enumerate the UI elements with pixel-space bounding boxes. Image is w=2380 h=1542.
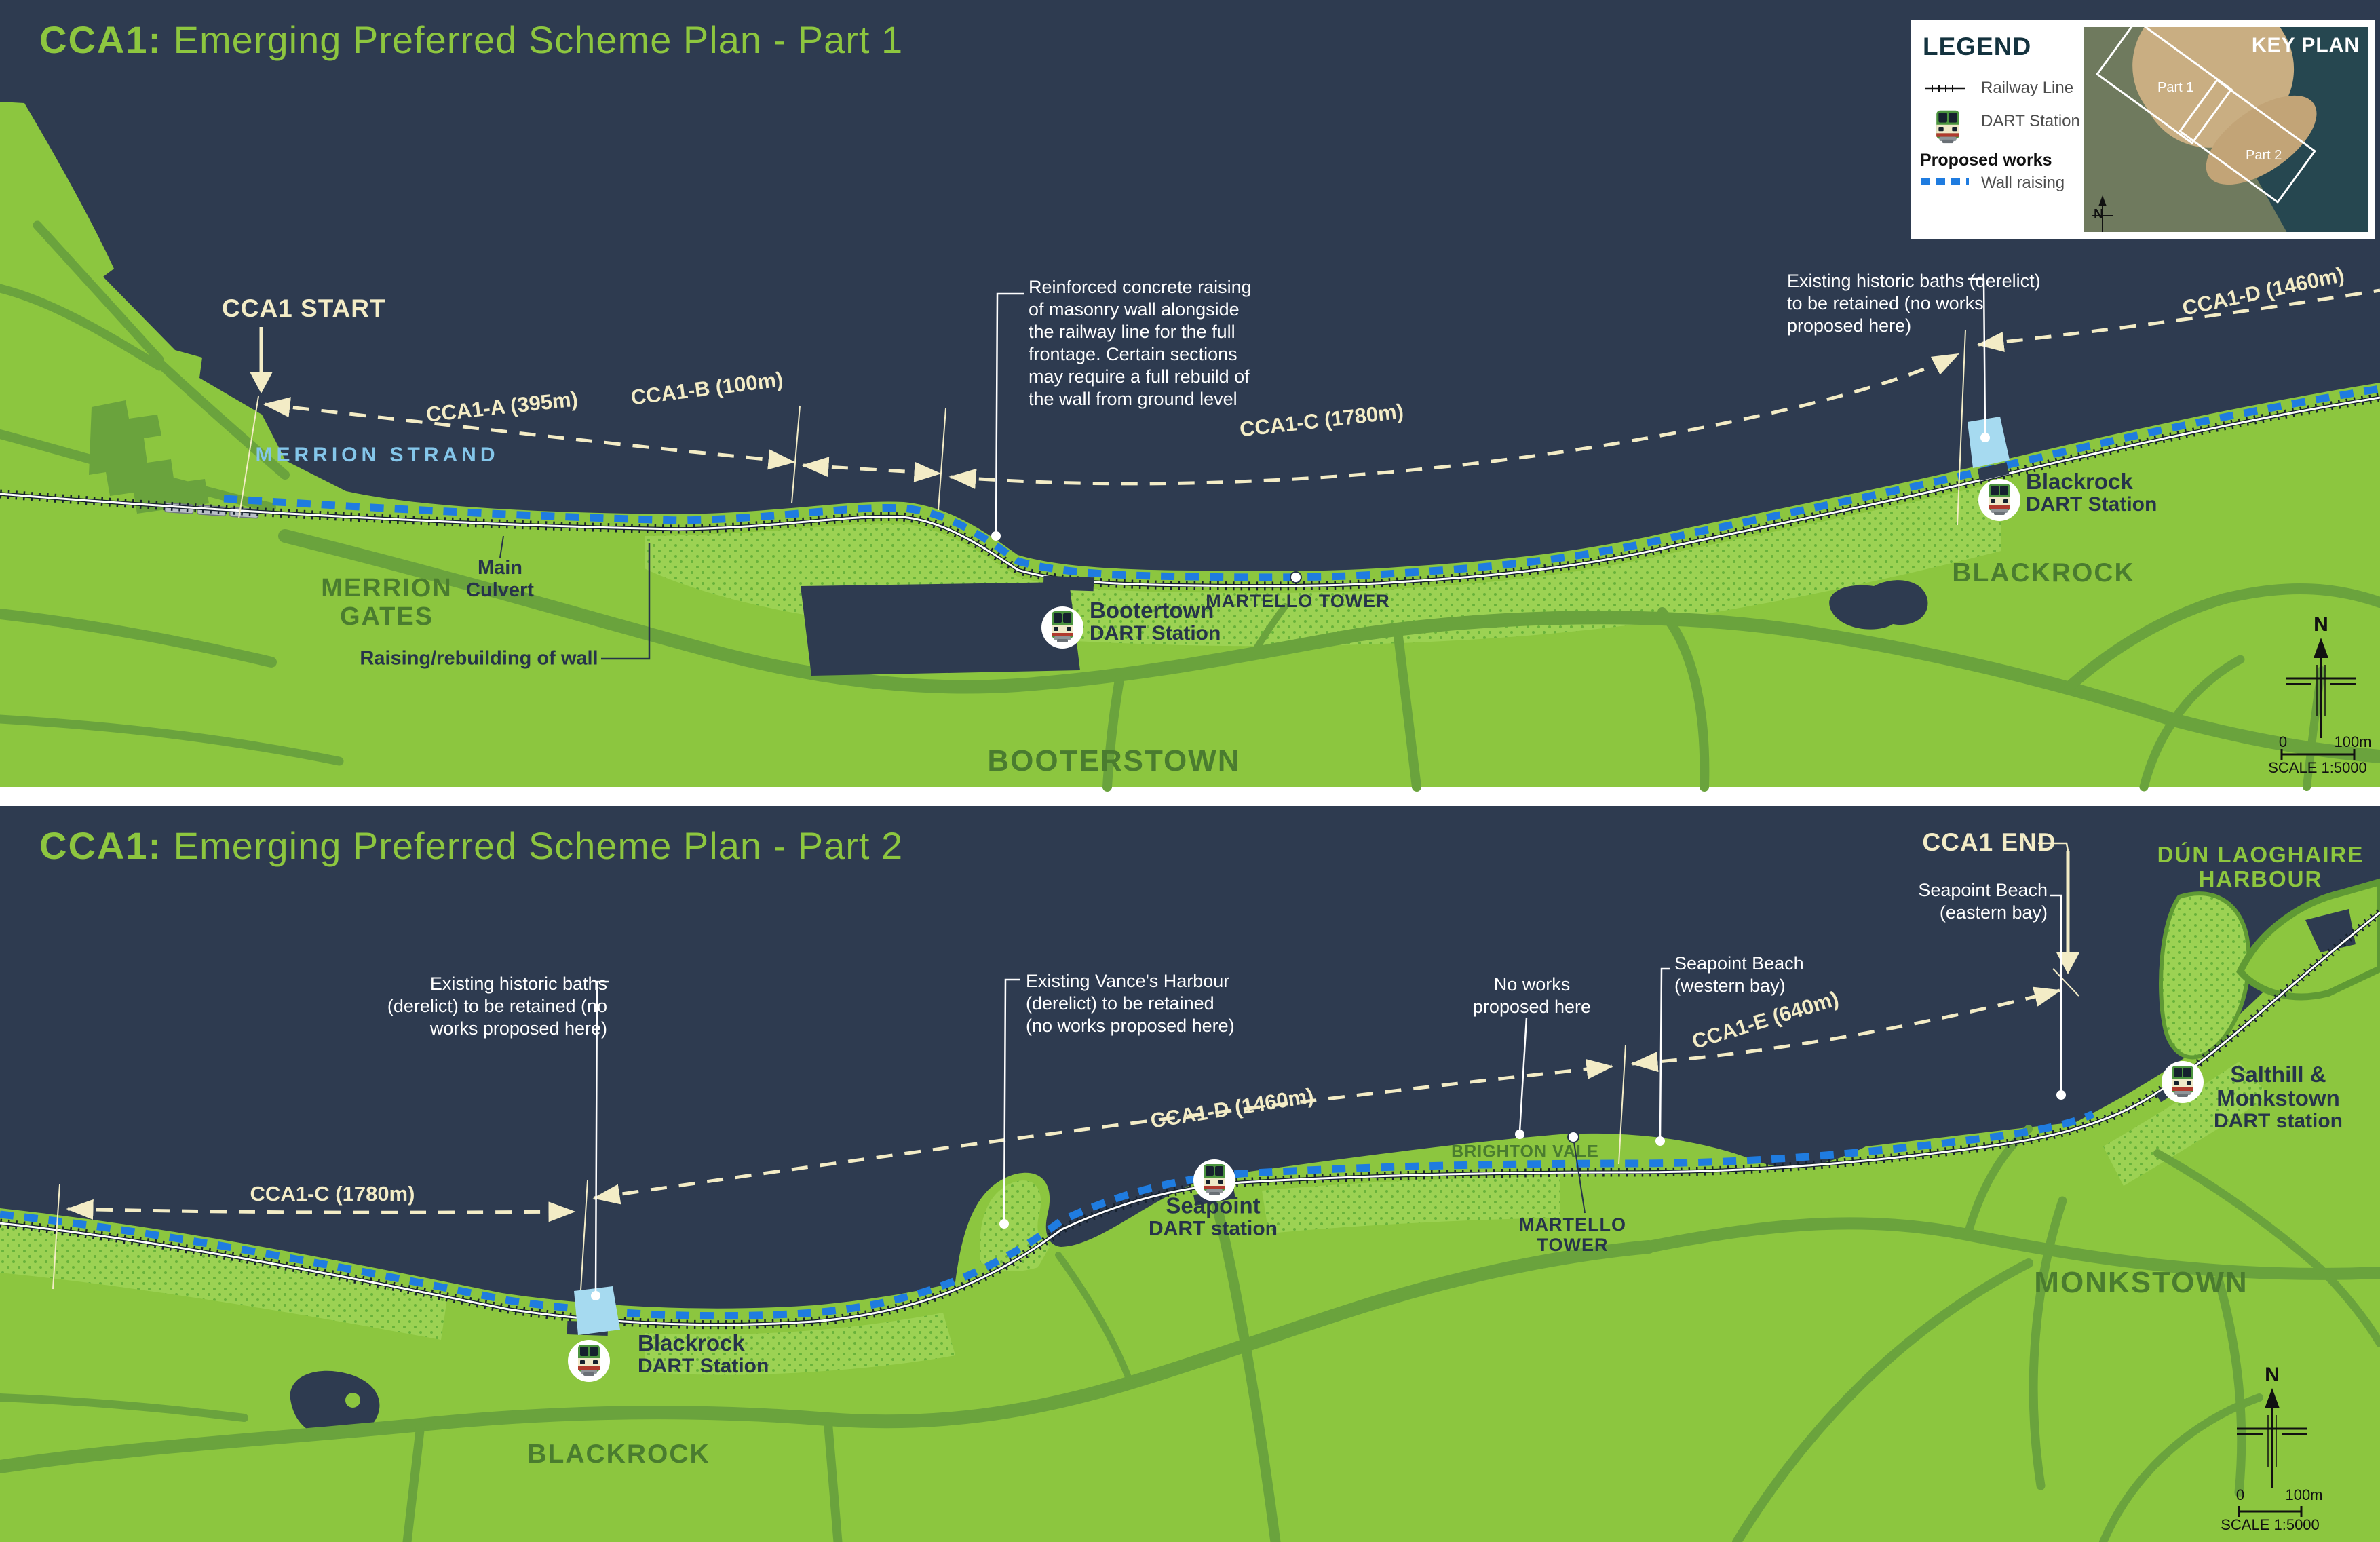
part2-north-letter: N: [2265, 1364, 2280, 1387]
railway-line-icon: [1925, 83, 1966, 94]
keyplan-satellite: KEY PLAN Part 1 Part 2 N: [2084, 27, 2368, 232]
station-name: Blackrock: [638, 1331, 769, 1355]
reinforced-concrete-note: Reinforced concrete raising of masonry w…: [1029, 276, 1252, 410]
note-line: of masonry wall alongside: [1029, 298, 1252, 321]
martello-line2: TOWER: [1519, 1235, 1626, 1255]
booterstown-station-label: Bootertown DART Station: [1090, 598, 1221, 645]
station-sub: DART Station: [2026, 493, 2157, 516]
cca1-start-label: CCA1 START: [222, 294, 386, 323]
merrion-gates-line2: GATES: [321, 602, 452, 631]
booterstown-platform: [1043, 576, 1094, 592]
keyplan-part1-label: Part 1: [2157, 80, 2193, 96]
station-name: Salthill &: [2214, 1062, 2343, 1086]
note-line: the wall from ground level: [1029, 388, 1252, 410]
note-line: Seapoint Beach: [1859, 879, 2048, 902]
note-line: No works: [1473, 974, 1591, 996]
station-sub: DART station: [1149, 1218, 1278, 1241]
harbour-line2: HARBOUR: [2157, 867, 2364, 891]
dart-station-icon-blackrock2: [568, 1340, 610, 1382]
note-line: (derelict) to be retained (no: [363, 995, 607, 1018]
martello-tower-label-part2: MARTELLO TOWER: [1519, 1214, 1626, 1255]
keyplan-north-arrow: [2092, 195, 2113, 232]
booterstown-marsh: [801, 582, 1080, 676]
part2-scale-max: 100m: [2285, 1486, 2322, 1504]
note-line: Seapoint Beach: [1674, 952, 1804, 975]
part2-pond-island: [345, 1393, 360, 1408]
dim-cca1-c2-label: CCA1-C (1780m): [250, 1182, 415, 1206]
seapoint-station-label: Seapoint DART station: [1149, 1194, 1278, 1241]
station-name: Blackrock: [2026, 469, 2157, 493]
station-sub: DART Station: [638, 1355, 769, 1378]
note-line: Existing historic baths: [363, 973, 607, 995]
part2-title: CCA1: Emerging Preferred Scheme Plan - P…: [39, 824, 903, 868]
wall-raising-icon: [1921, 176, 1970, 186]
part1-north-letter: N: [2314, 613, 2328, 636]
cca1-end-label: CCA1 END: [1922, 828, 2056, 857]
part1-scale-zero: 0: [2279, 733, 2287, 751]
blackrock-area-label-part1: BLACKROCK: [1952, 558, 2134, 588]
keyplan-part2-label: Part 2: [2246, 148, 2282, 163]
dart-station-icon: [1925, 103, 1973, 152]
part2-title-code: CCA1:: [39, 824, 162, 867]
dart-station-icon-blackrock1: [1978, 479, 2020, 521]
part1-title: CCA1: Emerging Preferred Scheme Plan - P…: [39, 18, 903, 62]
seapoint-beach-east-label: Seapoint Beach (eastern bay): [1859, 879, 2048, 924]
note-line: proposed here): [1787, 315, 2041, 337]
legend-railway-label: Railway Line: [1981, 79, 2073, 98]
note-line: Reinforced concrete raising: [1029, 276, 1252, 298]
part2-title-text: Emerging Preferred Scheme Plan - Part 2: [162, 824, 903, 867]
note-line: (eastern bay): [1859, 902, 2048, 924]
monkstown-area-label: MONKSTOWN: [2034, 1266, 2248, 1300]
station-sub: DART station: [2214, 1110, 2343, 1133]
note-line: may require a full rebuild of: [1029, 366, 1252, 388]
merrion-gates-line1: MERRION: [321, 574, 452, 602]
main-culvert-line2: Culvert: [466, 579, 534, 602]
historic-baths-note-part1: Existing historic baths (derelict) to be…: [1787, 270, 2041, 337]
vance-harbour-note: Existing Vance's Harbour (derelict) to b…: [1026, 970, 1235, 1037]
legend-dart-label: DART Station: [1981, 112, 2080, 131]
note-line: works proposed here): [363, 1018, 607, 1040]
note-line: (western bay): [1674, 975, 1804, 997]
dart-station-icon-booterstown: [1041, 606, 1083, 649]
historic-baths-note-part2: Existing historic baths (derelict) to be…: [363, 973, 607, 1040]
station-name: Bootertown: [1090, 598, 1221, 622]
seapoint-beach-west-label: Seapoint Beach (western bay): [1674, 952, 1804, 997]
part1-title-text: Emerging Preferred Scheme Plan - Part 1: [162, 18, 903, 61]
brighton-vale-label: BRIGHTON VALE: [1451, 1142, 1599, 1162]
raising-wall-label: Raising/rebuilding of wall: [360, 648, 598, 670]
merrion-strand-label: MERRION STRAND: [256, 444, 499, 467]
note-line: Existing Vance's Harbour: [1026, 970, 1235, 992]
part2-scale-text: SCALE 1:5000: [2221, 1516, 2320, 1534]
martello-tower-label-part1: MARTELLO TOWER: [1206, 591, 1389, 611]
no-works-note: No works proposed here: [1473, 974, 1591, 1018]
blackrock-station-label-part1: Blackrock DART Station: [2026, 469, 2157, 516]
martello-line1: MARTELLO: [1519, 1214, 1626, 1235]
note-line: frontage. Certain sections: [1029, 343, 1252, 366]
scheme-plan-page: CCA1: Emerging Preferred Scheme Plan - P…: [0, 0, 2380, 1542]
main-culvert-line1: Main: [466, 557, 534, 579]
station-name: Monkstown: [2214, 1086, 2343, 1110]
note-line: to be retained (no works: [1787, 292, 2041, 315]
main-culvert-label: Main Culvert: [466, 557, 534, 602]
station-name: Seapoint: [1149, 1194, 1278, 1218]
merrion-gates-label: MERRION GATES: [321, 574, 452, 631]
note-line: Existing historic baths (derelict): [1787, 270, 2041, 292]
note-line: (derelict) to be retained: [1026, 992, 1235, 1015]
blackrock-area-label-part2: BLACKROCK: [527, 1440, 710, 1469]
part1-scale-max: 100m: [2334, 733, 2371, 751]
blackrock-station-label-part2: Blackrock DART Station: [638, 1331, 769, 1378]
keyplan-title: KEY PLAN: [2252, 34, 2360, 57]
legend-proposed-works: Proposed works: [1920, 151, 2052, 170]
part1-scale-text: SCALE 1:5000: [2268, 759, 2367, 777]
part2-scale-zero: 0: [2236, 1486, 2244, 1504]
salthill-monkstown-station-label: Salthill & Monkstown DART station: [2214, 1062, 2343, 1133]
note-line: proposed here: [1473, 996, 1591, 1018]
legend-title: LEGEND: [1923, 33, 2031, 61]
dart-station-icon-salthill: [2162, 1061, 2204, 1103]
part1-title-code: CCA1:: [39, 18, 162, 61]
note-line: the railway line for the full: [1029, 321, 1252, 343]
legend-wall-label: Wall raising: [1981, 174, 2065, 193]
booterstown-area-label: BOOTERSTOWN: [987, 744, 1240, 778]
station-sub: DART Station: [1090, 622, 1221, 645]
dun-laoghaire-harbour-label: DÚN LAOGHAIRE HARBOUR: [2157, 843, 2364, 891]
harbour-line1: DÚN LAOGHAIRE: [2157, 843, 2364, 867]
legend-panel: LEGEND Railway Line DART Station Propose…: [1911, 20, 2375, 239]
note-line: (no works proposed here): [1026, 1015, 1235, 1037]
